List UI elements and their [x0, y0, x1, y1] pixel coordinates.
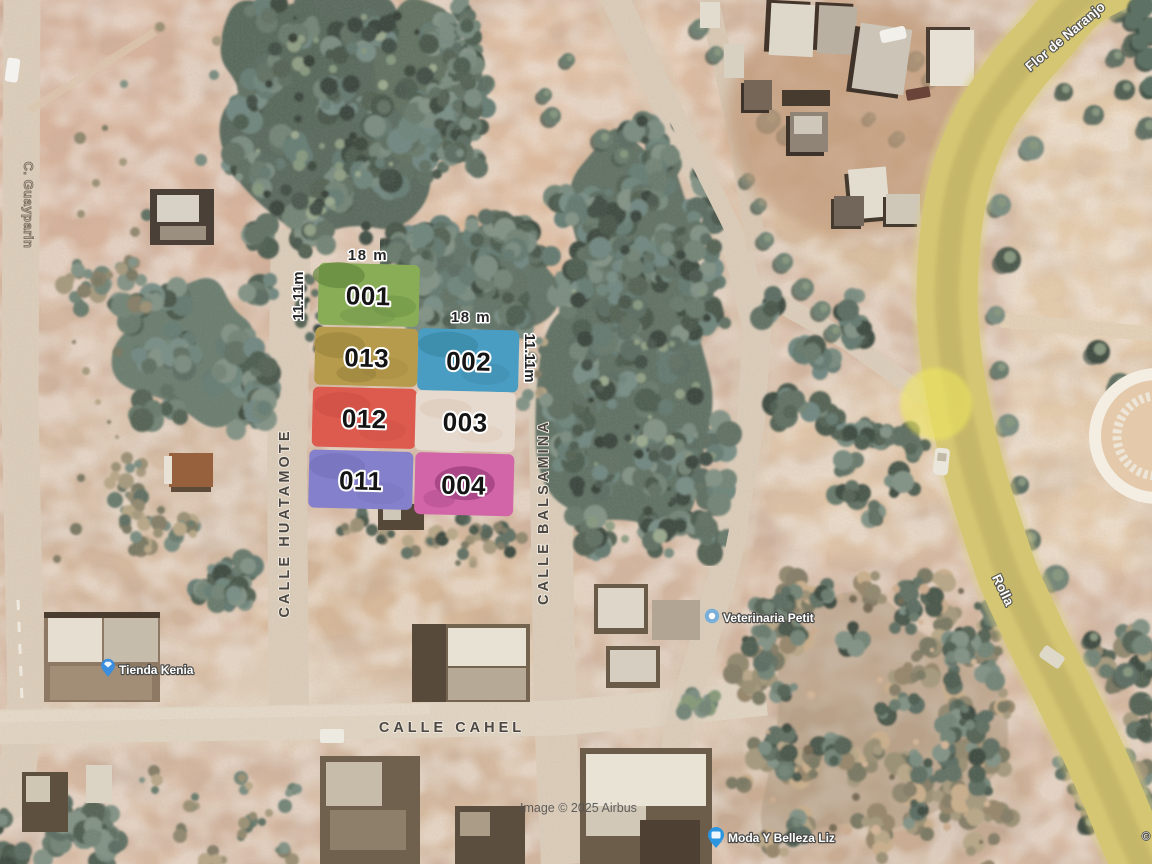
svg-text:11.11m: 11.11m	[290, 271, 307, 320]
svg-text:011: 011	[339, 465, 383, 496]
svg-text:CALLE BALSAMINA: CALLE BALSAMINA	[536, 419, 552, 605]
svg-text:CALLE CAHEL: CALLE CAHEL	[379, 720, 525, 736]
svg-text:013: 013	[344, 342, 390, 373]
svg-text:001: 001	[345, 280, 391, 311]
svg-text:Tienda Kenia: Tienda Kenia	[119, 663, 194, 677]
svg-text:11.11m: 11.11m	[521, 333, 538, 382]
svg-text:003: 003	[442, 407, 488, 438]
svg-text:002: 002	[446, 346, 492, 377]
svg-text:Moda Y Belleza Liz: Moda Y Belleza Liz	[728, 831, 835, 845]
svg-text:CALLE HUATAMOTE: CALLE HUATAMOTE	[277, 428, 293, 617]
svg-text:004: 004	[441, 470, 487, 501]
svg-text:Veterinaria Petit: Veterinaria Petit	[723, 611, 814, 625]
svg-text:C. Guayparin: C. Guayparin	[21, 162, 36, 249]
svg-text:Image © 2025 Airbus: Image © 2025 Airbus	[520, 801, 637, 815]
svg-text:©: ©	[1142, 831, 1150, 843]
svg-text:18 m: 18 m	[348, 247, 388, 264]
svg-text:012: 012	[341, 403, 387, 434]
svg-text:18 m: 18 m	[451, 309, 491, 326]
